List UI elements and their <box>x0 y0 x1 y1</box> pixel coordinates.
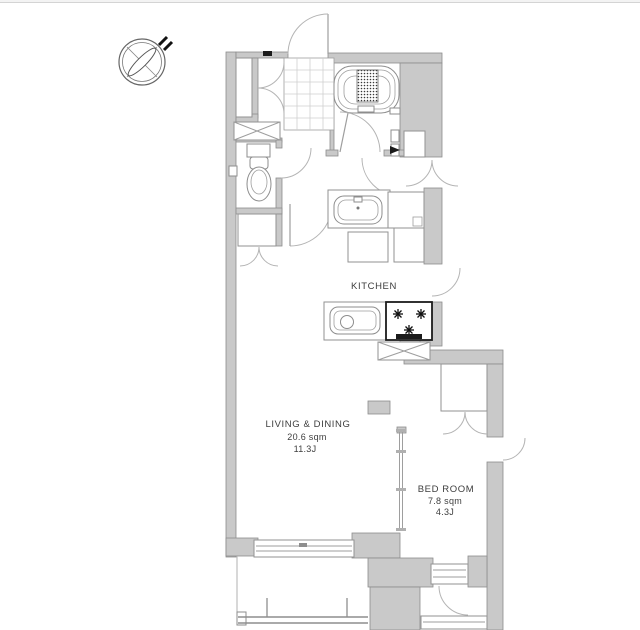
bedroom-label: BED ROOM <box>418 484 475 495</box>
kitchen-sink <box>330 307 380 334</box>
kitchen-service-door-swing <box>432 268 460 296</box>
bathtub <box>334 66 399 113</box>
bedroom-area-tatami: 4.3J <box>436 507 454 517</box>
washbasin <box>334 196 382 224</box>
kitchen-label: KITCHEN <box>351 281 397 292</box>
living-dining-area-sqm: 20.6 sqm <box>287 432 326 442</box>
sliding-window <box>254 540 354 557</box>
balcony-railing <box>237 612 368 625</box>
living-dining-area-tatami: 11.3J <box>294 444 317 454</box>
floor-plan-drawing: KITCHEN LIVING & DINING 20.6 sqm 11.3J B… <box>0 0 640 630</box>
bedroom-balcony-door <box>431 564 468 615</box>
burner-icon <box>393 309 403 319</box>
pipe-shaft-crossed-box <box>378 342 430 360</box>
toilet-door-swing <box>281 148 311 178</box>
compass-north-icon <box>119 37 172 85</box>
washing-machine-pan <box>388 192 424 228</box>
hall-closet <box>238 214 278 266</box>
entrance-door <box>263 14 328 56</box>
corridor-door-swing <box>406 160 432 186</box>
toilet-room <box>229 122 311 201</box>
bedroom-closet <box>441 364 487 411</box>
burner-icon <box>404 325 414 335</box>
washroom <box>328 190 424 262</box>
toilet <box>247 144 271 201</box>
door-stop-mark <box>263 51 272 56</box>
bath-shelf <box>391 130 399 142</box>
toilet-paper-holder <box>229 166 237 176</box>
gas-stove <box>386 302 432 340</box>
cabinet <box>348 232 388 262</box>
hall-living-door-swing <box>290 204 332 246</box>
bedroom-balcony-railing <box>421 616 487 629</box>
grill <box>396 334 422 339</box>
refrigerator-space <box>394 228 424 262</box>
bath-control-panel <box>390 108 400 114</box>
service-door-swing <box>432 160 458 186</box>
living-dining-label: LIVING & DINING <box>265 419 350 430</box>
sliding-partition <box>396 429 406 531</box>
shoe-cabinet <box>236 58 284 117</box>
genkan-tile <box>284 58 334 130</box>
burner-icon <box>416 309 426 319</box>
floor-plan: KITCHEN LIVING & DINING 20.6 sqm 11.3J B… <box>0 0 640 630</box>
bedroom-service-door-swing <box>503 438 525 460</box>
living-balcony <box>237 540 368 625</box>
bedroom-area-sqm: 7.8 sqm <box>428 496 462 506</box>
pipe-shaft <box>404 131 425 157</box>
